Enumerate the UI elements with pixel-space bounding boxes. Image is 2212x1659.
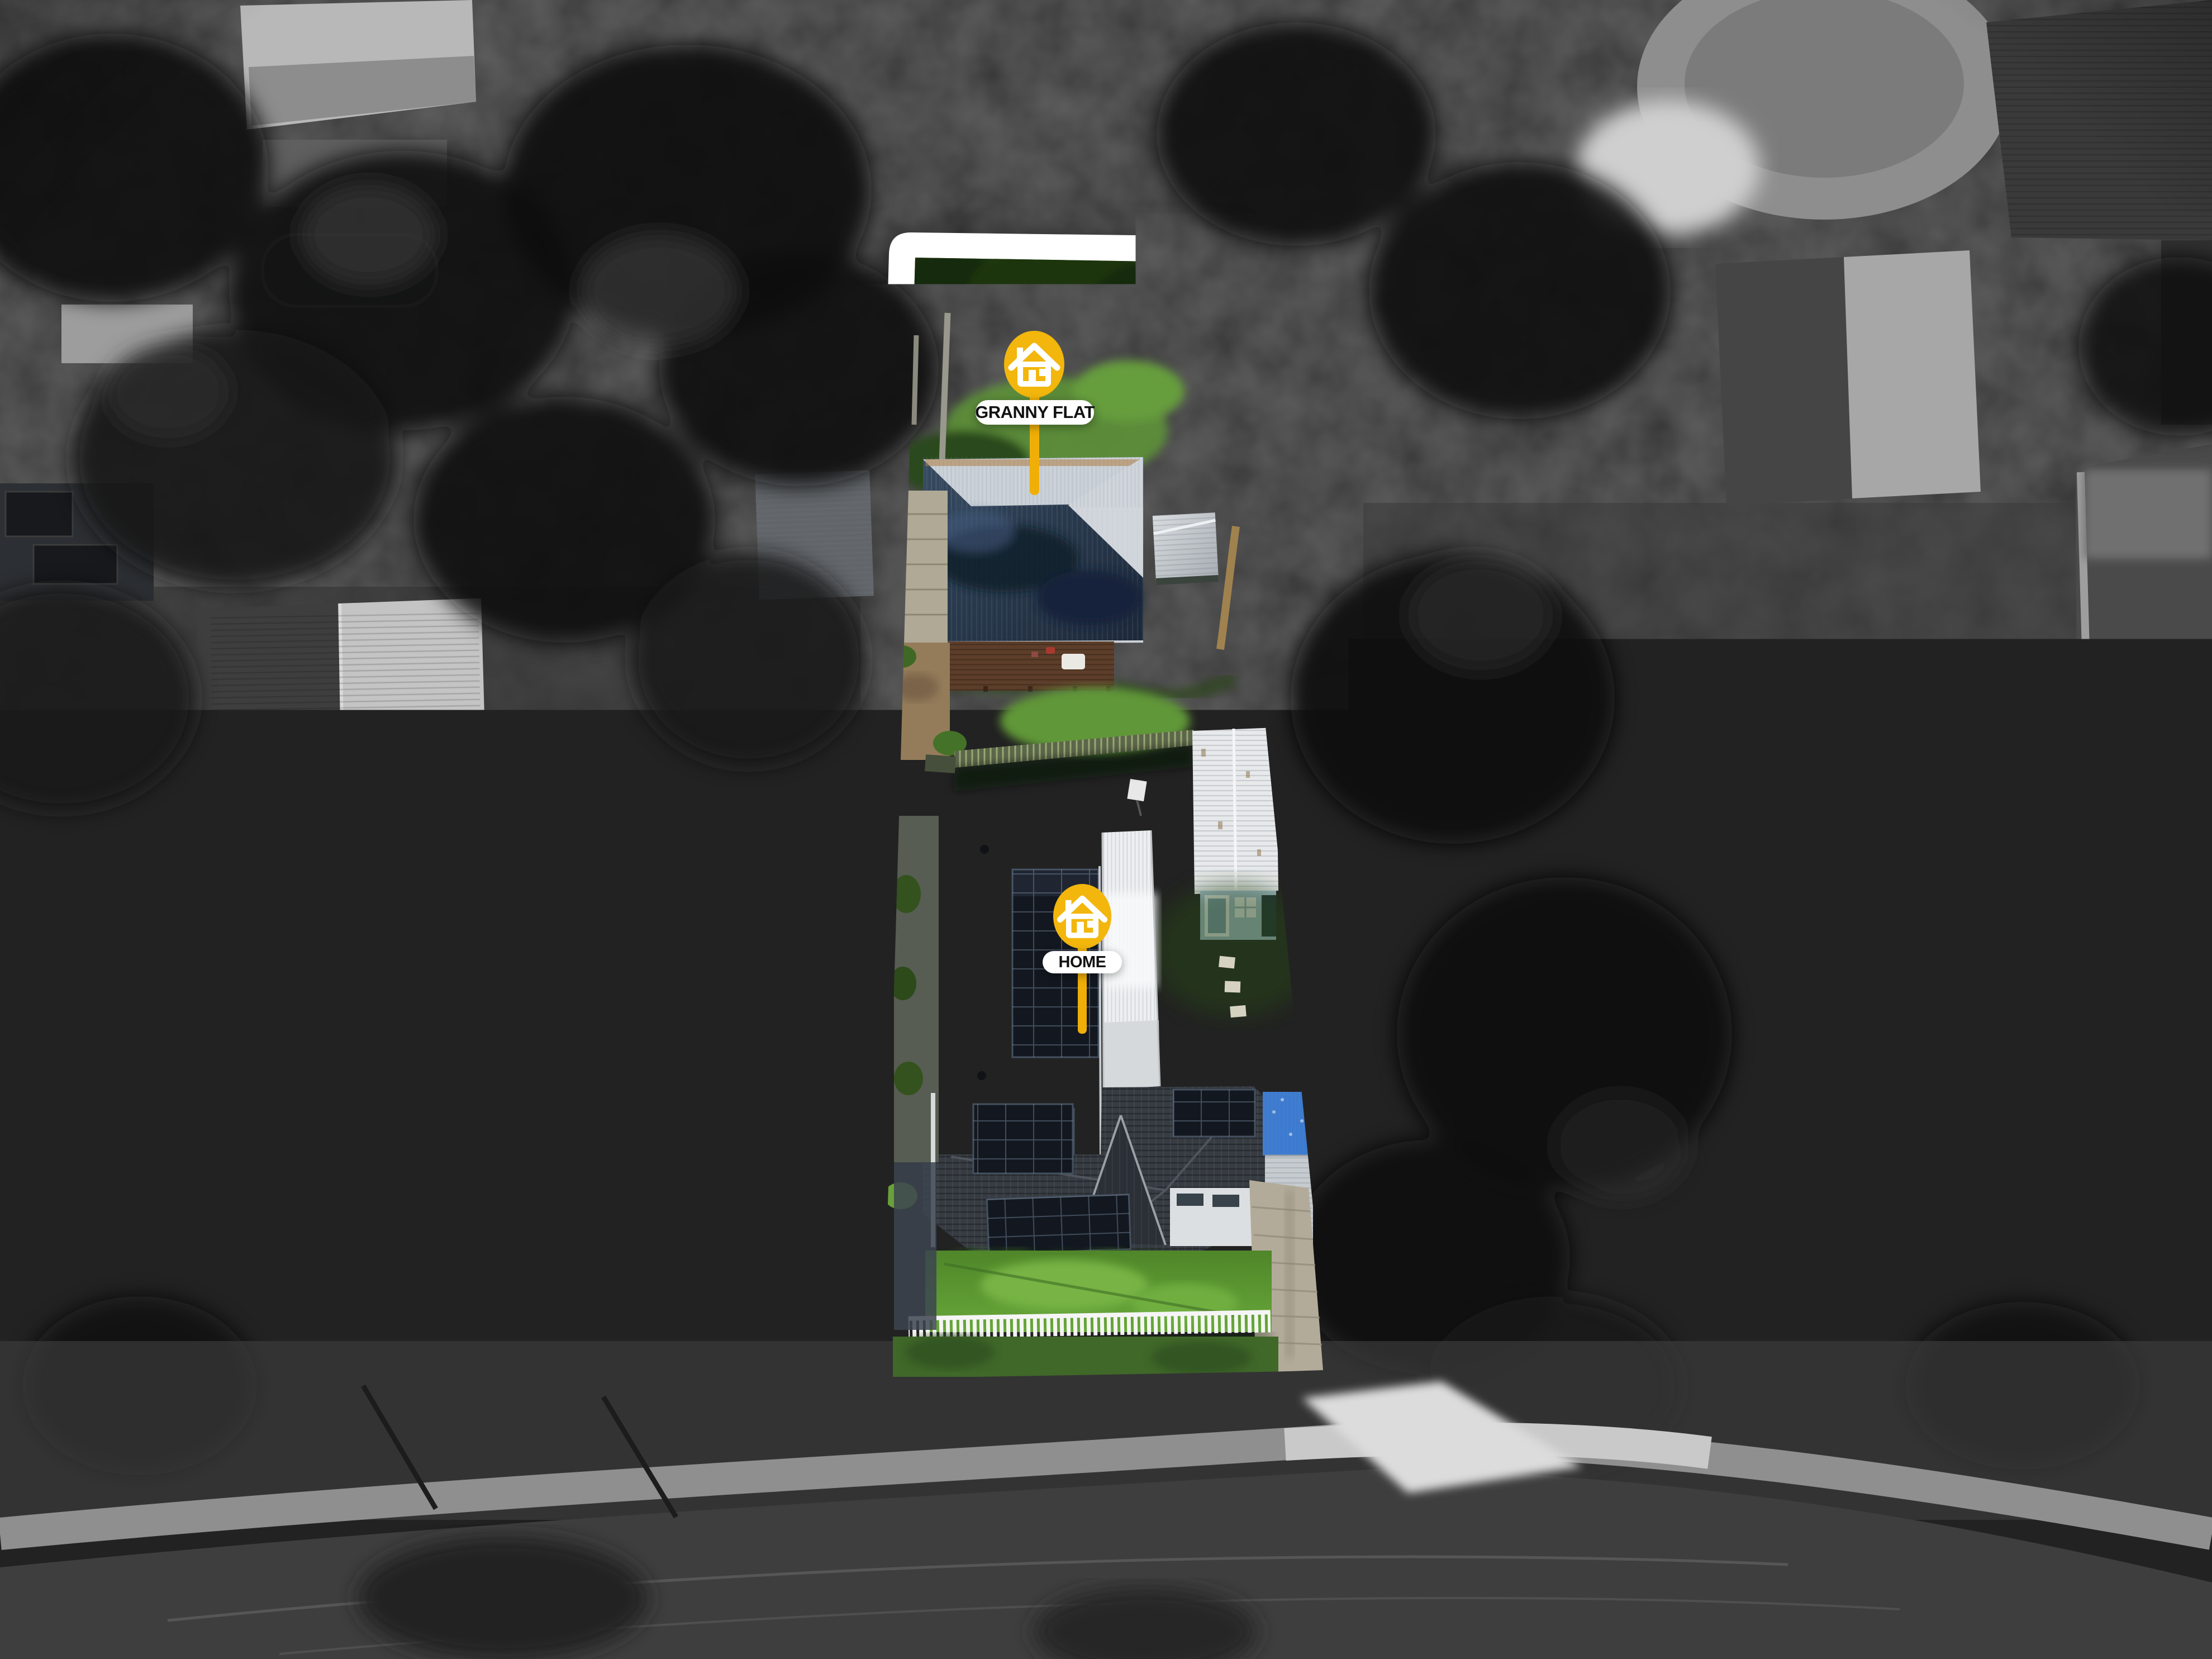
- aerial-scene: GRANNY FLAT HOME: [0, 0, 2212, 1659]
- garden-shed: [1153, 512, 1219, 585]
- marker-label-text: GRANNY FLAT: [975, 402, 1095, 422]
- marker-label-text: HOME: [1059, 953, 1106, 971]
